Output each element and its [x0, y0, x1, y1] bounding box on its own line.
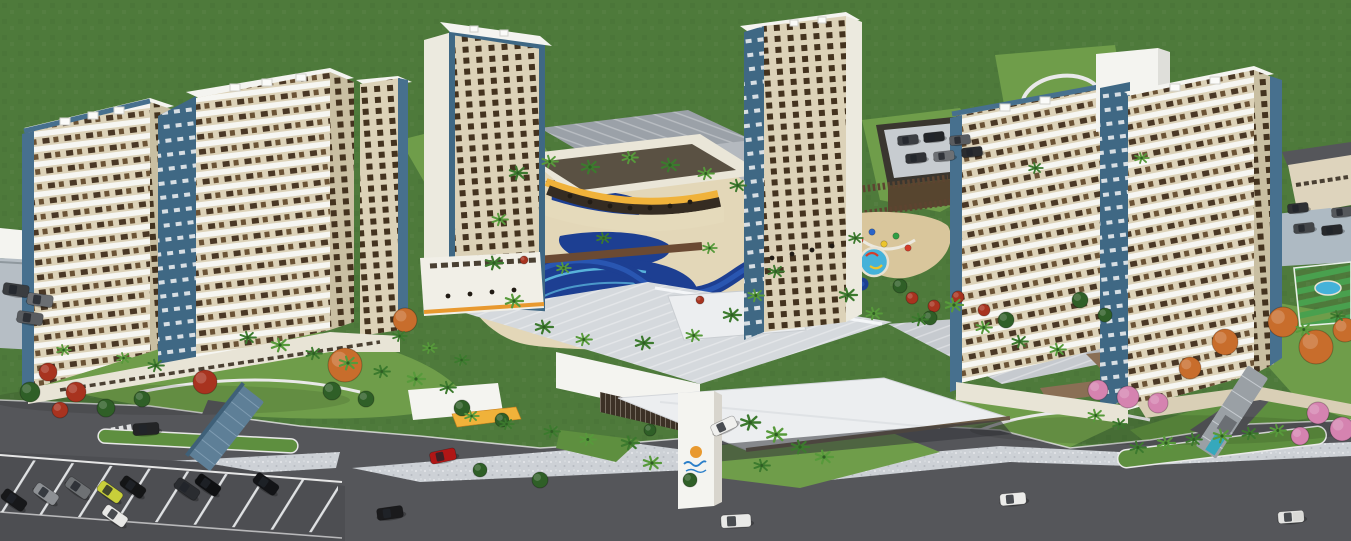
green-bush [323, 382, 341, 400]
red-flower-bush [193, 370, 217, 394]
tl2-side-windows [330, 72, 354, 330]
tl2-vent [262, 79, 272, 86]
terrace-table [608, 204, 613, 209]
green-bush [473, 463, 487, 477]
pink-flower-bush [1088, 380, 1108, 400]
green-bush [998, 312, 1014, 328]
red-flower-bush [520, 256, 528, 264]
tl1-vent [60, 118, 70, 125]
red-flower-bush [906, 292, 918, 304]
green-bush [1098, 308, 1112, 322]
tl1-balconies [28, 102, 150, 390]
terrace-table [648, 206, 653, 211]
green-bush [683, 473, 697, 487]
pink-flower-bush [1330, 417, 1351, 441]
terrace-table [628, 206, 633, 211]
tower-left-1 [22, 98, 174, 396]
tr2-vent [1210, 77, 1220, 84]
red-flower-bush [39, 363, 57, 381]
green-bush [454, 400, 470, 416]
tl2-balconies [196, 72, 330, 360]
tl1-blue-trim [22, 131, 34, 396]
pink-flower-bush [1148, 393, 1168, 413]
right-core-windows [1100, 82, 1130, 408]
red-flower-bush [928, 300, 940, 312]
autumn-orange [1212, 329, 1238, 355]
t3-vent [500, 30, 508, 36]
render-canvas [0, 0, 1351, 541]
resort-aerial-render [0, 0, 1351, 541]
tower-left-2 [186, 68, 354, 360]
tl1-vent [114, 107, 124, 114]
terrace-table [810, 248, 815, 253]
terrace-table [446, 294, 451, 299]
t4-vent [790, 20, 798, 26]
pylon-side [714, 391, 722, 506]
playground-equipment-dot [905, 245, 911, 251]
pink-flower-bush [1117, 386, 1139, 408]
green-bush [1072, 292, 1088, 308]
t4-vent [818, 17, 826, 23]
playground-equipment-dot [881, 241, 887, 247]
green-bush [134, 391, 150, 407]
pink-flower-bush [1307, 402, 1329, 424]
center-left-tower [420, 22, 552, 316]
terrace-table [490, 290, 495, 295]
tr2-vent [1170, 84, 1180, 91]
tl1-vent [88, 112, 98, 119]
green-bush [97, 399, 115, 417]
playground-equipment-dot [869, 229, 875, 235]
autumn-orange [1179, 357, 1201, 379]
green-bush [893, 279, 907, 293]
autumn-orange [393, 308, 417, 332]
terrace-table [588, 200, 593, 205]
green-bush [644, 424, 656, 436]
tr1-balconies [956, 88, 1104, 384]
tl2-vent [296, 74, 306, 81]
pink-flower-bush [1291, 427, 1309, 445]
tower-left-3 [356, 76, 412, 336]
t4-windows [764, 16, 846, 332]
left-core-windows [158, 96, 196, 378]
annex-pool [1315, 281, 1341, 295]
sun-disc [690, 446, 702, 458]
entrance-pylon [678, 391, 722, 509]
red-flower-bush [52, 402, 68, 418]
playground-equipment-dot [893, 233, 899, 239]
center-right-tower [740, 12, 862, 340]
red-flower-bush [978, 304, 990, 316]
tr1-vent [1000, 104, 1010, 111]
red-flower-bush [696, 296, 704, 304]
terrace-table [770, 256, 775, 261]
tl3-blue-trim [398, 78, 408, 330]
green-bush [923, 311, 937, 325]
green-bush [532, 472, 548, 488]
green-bush [20, 382, 40, 402]
autumn-orange [1299, 330, 1333, 364]
terrace-table [668, 204, 673, 209]
terrace-table [830, 244, 835, 249]
tl2-vent [230, 84, 240, 91]
tl3-windows [360, 78, 400, 336]
tr1-vent [1040, 97, 1050, 104]
van [720, 514, 755, 530]
terrace-table [688, 200, 693, 205]
autumn-orange [1268, 307, 1298, 337]
terrace-table [568, 194, 573, 199]
terrace-table [512, 288, 517, 293]
green-bush [358, 391, 374, 407]
terrace-table [790, 252, 795, 257]
terrace-table [468, 292, 473, 297]
red-flower-bush [66, 382, 86, 402]
tower-right-2 [1124, 66, 1282, 410]
t3-vent [470, 26, 478, 32]
t4-side [846, 16, 862, 322]
